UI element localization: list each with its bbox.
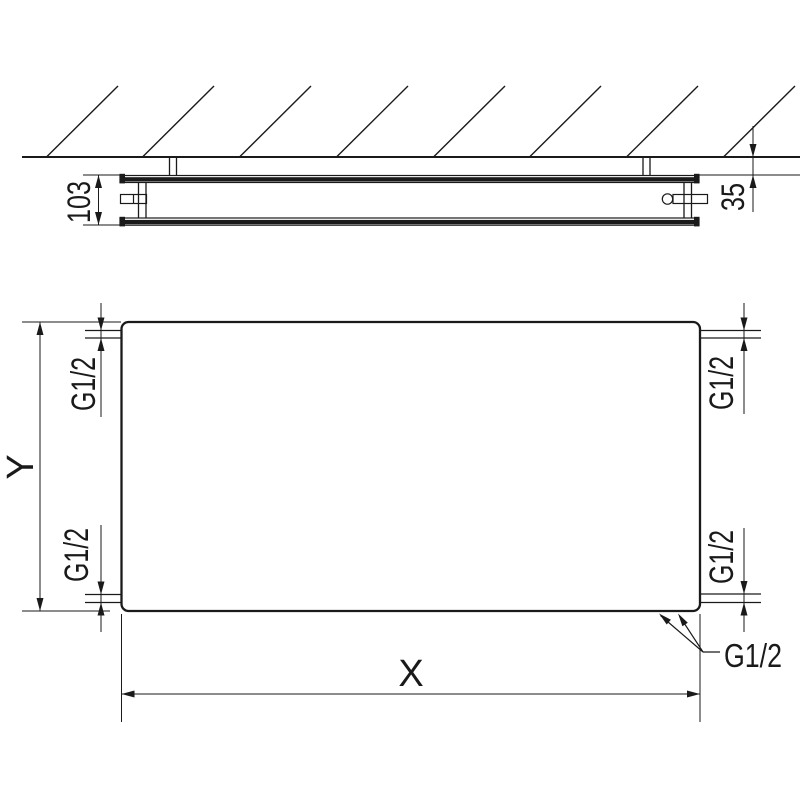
height-dimension-label: Y bbox=[0, 454, 42, 479]
hatch-line bbox=[337, 86, 408, 157]
width-dimension-label: X bbox=[398, 653, 423, 695]
thread-label-top-right: G1/2 bbox=[703, 356, 741, 410]
hatch-line bbox=[143, 86, 214, 157]
dim-arrow-down bbox=[37, 598, 44, 611]
dim-arrow-down bbox=[98, 582, 105, 595]
section-view: 103 35 bbox=[22, 86, 800, 226]
dim-arrow-up bbox=[98, 603, 105, 616]
back-panel-end-cap-left bbox=[120, 174, 126, 184]
hatch-line bbox=[47, 86, 118, 157]
screw-head bbox=[662, 194, 672, 204]
panel-bracket-right bbox=[684, 183, 692, 218]
dim-arrow-left bbox=[122, 691, 135, 698]
connection-stub-top-right bbox=[700, 331, 761, 339]
wall-distance-dimension-label: 35 bbox=[715, 183, 751, 211]
hatch-line bbox=[530, 86, 601, 157]
dim-arrow-up bbox=[37, 322, 44, 335]
hatch-line bbox=[627, 86, 698, 157]
leader-arrow bbox=[678, 614, 688, 627]
dim-arrow-down bbox=[741, 318, 748, 331]
connection-stub-bottom-right bbox=[700, 594, 761, 603]
panel-bracket-left bbox=[139, 183, 147, 218]
radiator-front-face bbox=[122, 322, 701, 611]
dim-arrow-down bbox=[741, 581, 748, 594]
hatch-line bbox=[240, 86, 311, 157]
dim-wall-distance-35: 35 bbox=[699, 126, 800, 212]
wall-bracket-left bbox=[170, 157, 177, 176]
connection-stub-top-left bbox=[85, 331, 121, 339]
wall-bracket-right bbox=[643, 157, 650, 176]
thread-label-bottom-right: G1/2 bbox=[703, 530, 741, 584]
back-panel-end-cap-right bbox=[694, 174, 700, 184]
thread-label-bottom-left: G1/2 bbox=[58, 528, 96, 582]
wall-hatching bbox=[47, 86, 795, 157]
thread-label-bottom-connections: G1/2 bbox=[724, 637, 782, 674]
dim-thread-top-left: G1/2 bbox=[65, 303, 105, 417]
depth-dimension-label: 103 bbox=[61, 181, 97, 223]
radiator-front-panel bbox=[120, 217, 700, 227]
bottom-connections-leader: G1/2 bbox=[659, 614, 782, 675]
hatch-line bbox=[434, 86, 505, 157]
dim-arrow-right bbox=[687, 691, 700, 698]
dim-depth-103: 103 bbox=[61, 175, 120, 225]
radiator-drawing: 103 35 bbox=[0, 0, 800, 800]
screw-shaft bbox=[673, 195, 708, 204]
front-panel-core bbox=[121, 220, 699, 224]
dim-arrow-up bbox=[741, 603, 748, 616]
bracket-screw-right bbox=[662, 194, 707, 204]
front-panel-end-cap-right bbox=[694, 217, 700, 227]
dim-thread-top-right: G1/2 bbox=[703, 303, 748, 414]
dim-arrow-down bbox=[750, 144, 757, 157]
back-panel-core bbox=[121, 177, 699, 181]
bracket-tab-left bbox=[121, 195, 147, 204]
thread-label-top-left: G1/2 bbox=[65, 357, 103, 411]
hatch-line bbox=[724, 86, 795, 157]
dim-arrow-down bbox=[98, 318, 105, 331]
dim-arrow-up bbox=[741, 338, 748, 351]
drawing-canvas: 103 35 bbox=[0, 0, 800, 800]
connection-stub-bottom-left bbox=[85, 595, 121, 603]
dim-thread-bottom-right: G1/2 bbox=[703, 528, 748, 632]
dim-thread-bottom-left: G1/2 bbox=[58, 525, 105, 632]
front-panel-end-cap-left bbox=[120, 217, 126, 227]
radiator-back-panel bbox=[120, 174, 700, 184]
dim-arrow-up bbox=[98, 338, 105, 351]
front-view: G1/2 G1/2 G1/2 G1/2 bbox=[0, 303, 782, 722]
dim-width-x: X bbox=[122, 614, 701, 722]
